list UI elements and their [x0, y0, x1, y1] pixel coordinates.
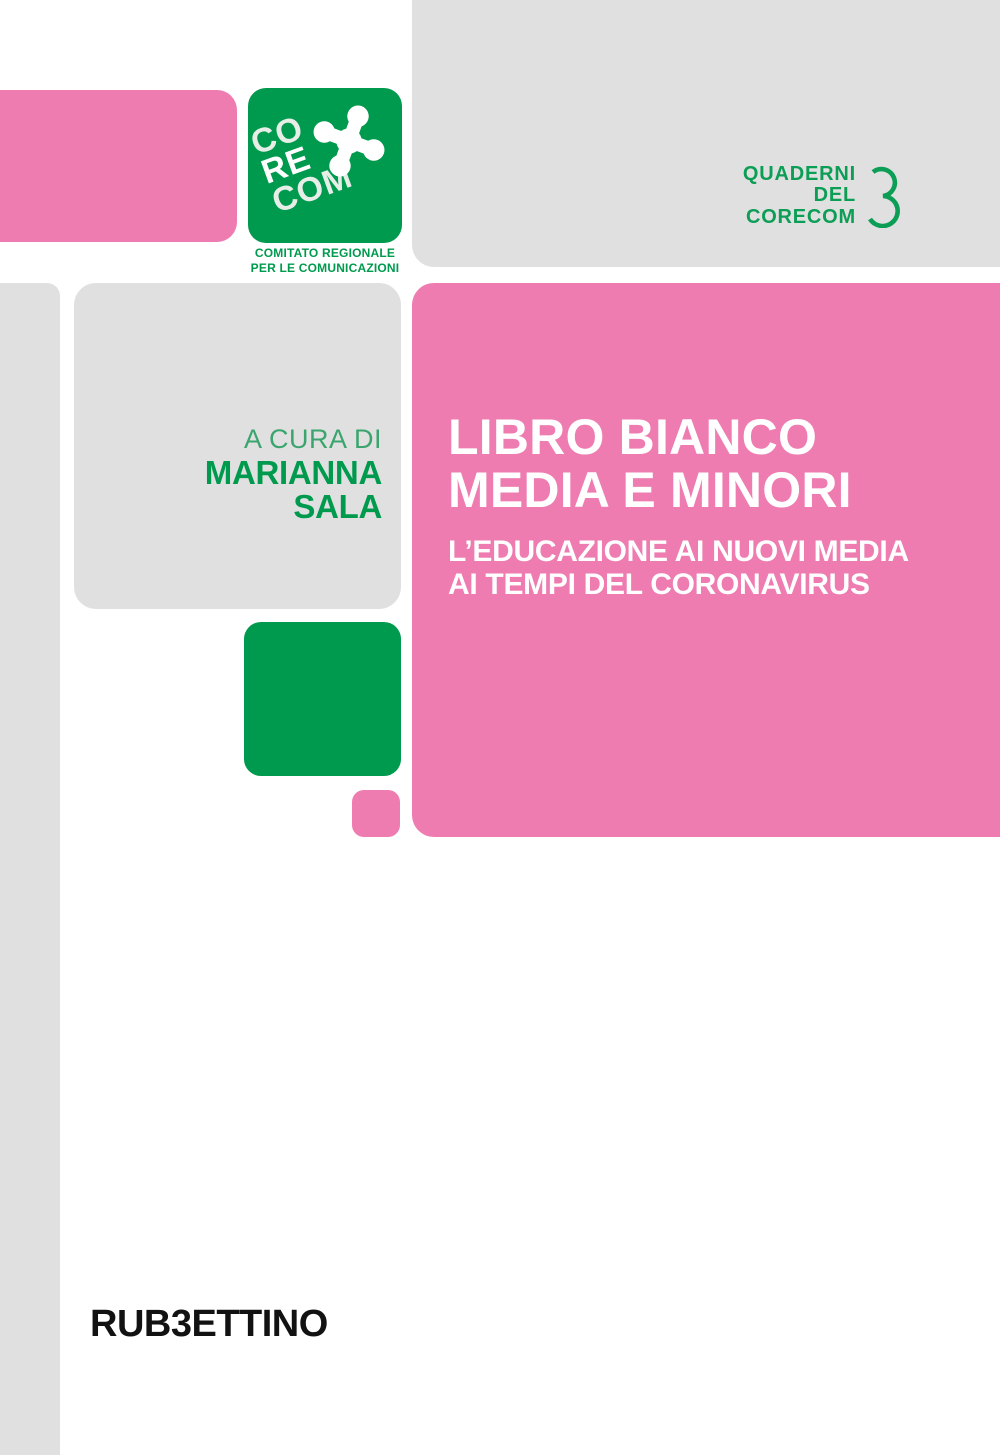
series-badge-line1: QUADERNI: [743, 164, 856, 186]
title-panel: LIBRO BIANCO MEDIA E MINORI L’EDUCAZIONE…: [412, 283, 1000, 837]
green-decor-square: [244, 622, 401, 776]
author-name-first: MARIANNA: [205, 456, 382, 490]
author-card: A CURA DI MARIANNA SALA: [74, 283, 401, 609]
book-subtitle-line2: AI TEMPI DEL CORONAVIRUS: [448, 568, 909, 601]
author-name-last: SALA: [205, 490, 382, 524]
pink-decor-square: [352, 790, 400, 837]
book-title: LIBRO BIANCO MEDIA E MINORI: [448, 411, 852, 517]
publisher-logo-part1: RUB: [90, 1303, 171, 1345]
series-badge-line2: DEL: [743, 185, 856, 207]
book-cover: CO RE COM COMITATO REGIONALE PER LE COMU…: [0, 0, 1000, 1455]
publisher-logo-part2: ETTINO: [191, 1303, 327, 1345]
rosa-camuna-icon: [310, 102, 388, 180]
author-block: A CURA DI MARIANNA SALA: [205, 423, 382, 524]
series-badge-text: QUADERNI DEL CORECOM: [743, 164, 856, 229]
series-badge-line3: CORECOM: [743, 207, 856, 229]
series-badge: QUADERNI DEL CORECOM: [620, 162, 905, 230]
series-number-glyph: [865, 164, 905, 228]
corecom-caption: COMITATO REGIONALE PER LE COMUNICAZIONI: [230, 246, 420, 275]
corecom-caption-line2: PER LE COMUNICAZIONI: [230, 261, 420, 276]
author-prefix: A CURA DI: [205, 423, 382, 456]
publisher-logo: RUB3ETTINO: [90, 1303, 328, 1345]
left-gray-strip: [0, 283, 60, 1455]
book-title-line1: LIBRO BIANCO: [448, 411, 852, 464]
pink-accent-bar: [0, 90, 237, 242]
corecom-logo-tile: CO RE COM: [248, 88, 402, 243]
book-title-line2: MEDIA E MINORI: [448, 464, 852, 517]
publisher-logo-stylized-b: 3: [171, 1303, 192, 1345]
corecom-caption-line1: COMITATO REGIONALE: [230, 246, 420, 261]
book-subtitle-line1: L’EDUCAZIONE AI NUOVI MEDIA: [448, 535, 909, 568]
book-subtitle: L’EDUCAZIONE AI NUOVI MEDIA AI TEMPI DEL…: [448, 535, 909, 601]
